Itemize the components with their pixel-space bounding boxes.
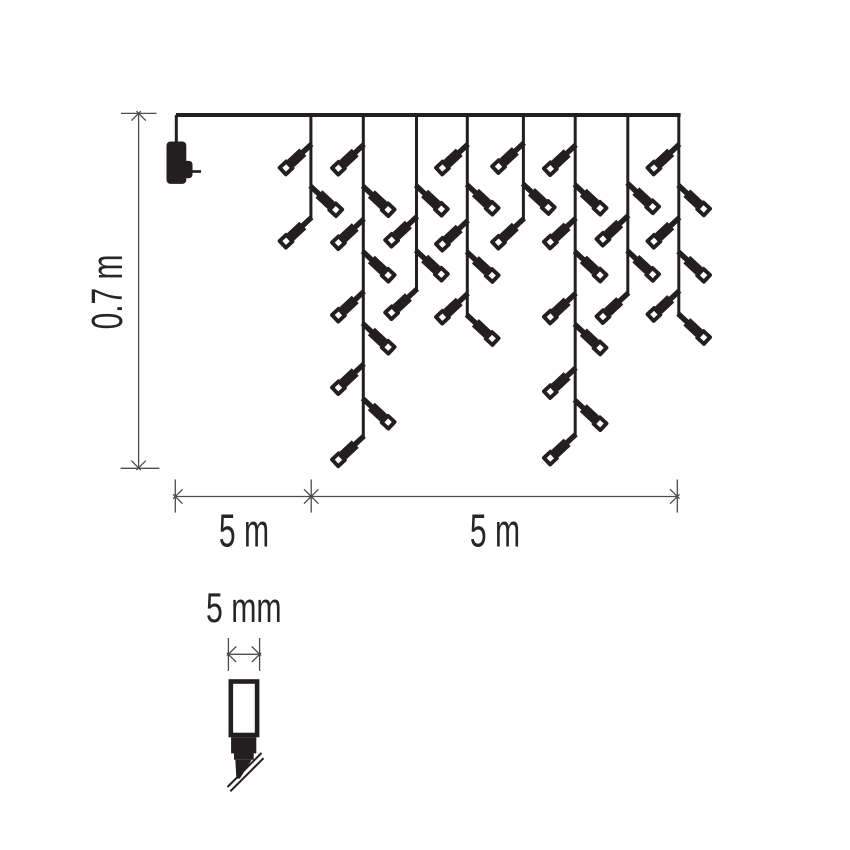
svg-text:5 m: 5 m [219, 506, 269, 557]
svg-text:5 mm: 5 mm [206, 584, 282, 631]
svg-text:0.7 m: 0.7 m [82, 255, 131, 330]
svg-text:5 m: 5 m [470, 506, 520, 557]
